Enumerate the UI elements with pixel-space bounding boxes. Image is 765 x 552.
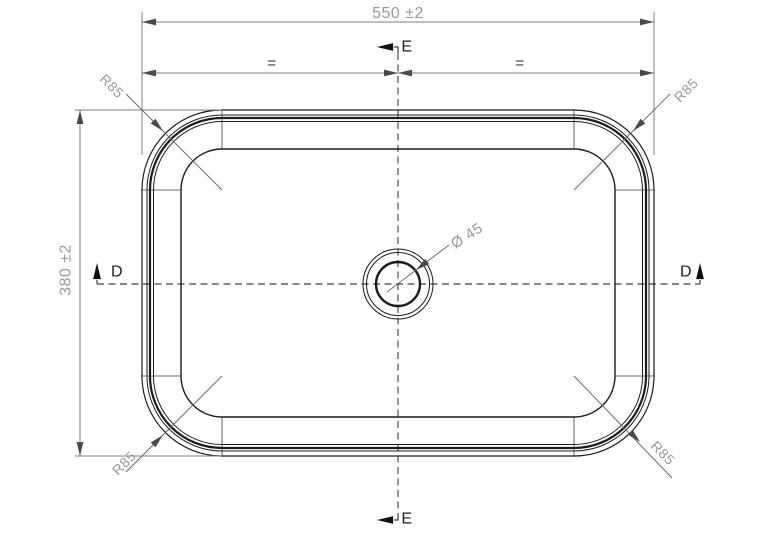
- section-label-e-top: E: [401, 39, 412, 56]
- section-label-d-left: D: [111, 264, 123, 281]
- section-d-group: D D: [93, 263, 704, 284]
- section-arrow-icon: [377, 516, 393, 524]
- width-dimension-label: 550 ±2: [372, 5, 424, 22]
- radius-leader-top-left: [126, 94, 222, 190]
- dim-arrow-icon: [384, 70, 398, 77]
- section-label-d-right: D: [680, 264, 692, 281]
- dim-arrow-icon: [77, 442, 84, 456]
- equal-symbol-right: =: [515, 55, 524, 72]
- radius-label-bottom-right: R85: [648, 438, 679, 469]
- technical-drawing-svg: 550 ±2 = = 380 ±2 R85 R85 R85 R85: [0, 0, 765, 552]
- dim-arrow-icon: [142, 19, 156, 26]
- dim-arrow-icon: [77, 110, 84, 124]
- radius-leader-bottom-right: [574, 376, 672, 478]
- dim-arrow-icon: [628, 430, 643, 445]
- drain-diameter-label: Ø 45: [448, 219, 486, 252]
- radius-leader-bottom-left: [126, 376, 222, 472]
- section-e-group: E E: [377, 39, 413, 528]
- section-arrow-icon: [377, 43, 393, 51]
- height-dimension-label: 380 ±2: [58, 244, 75, 296]
- drawing-canvas: 550 ±2 = = 380 ±2 R85 R85 R85 R85: [0, 0, 765, 552]
- section-arrow-icon: [696, 263, 704, 279]
- dim-arrow-icon: [142, 70, 156, 77]
- dim-arrow-icon: [640, 70, 654, 77]
- drain-diameter-callout-group: Ø 45: [387, 219, 486, 292]
- dim-arrow-icon: [640, 19, 654, 26]
- radius-leader-top-right: [574, 94, 670, 190]
- height-dimension-group: 380 ±2: [58, 110, 223, 456]
- section-arrow-icon: [93, 263, 101, 279]
- radius-label-top-left: R85: [97, 71, 128, 102]
- radius-label-top-right: R85: [671, 75, 702, 106]
- section-label-e-bottom: E: [401, 511, 412, 528]
- radius-label-bottom-left: R85: [109, 448, 140, 479]
- equal-symbol-left: =: [267, 55, 276, 72]
- dim-arrow-icon: [398, 70, 412, 77]
